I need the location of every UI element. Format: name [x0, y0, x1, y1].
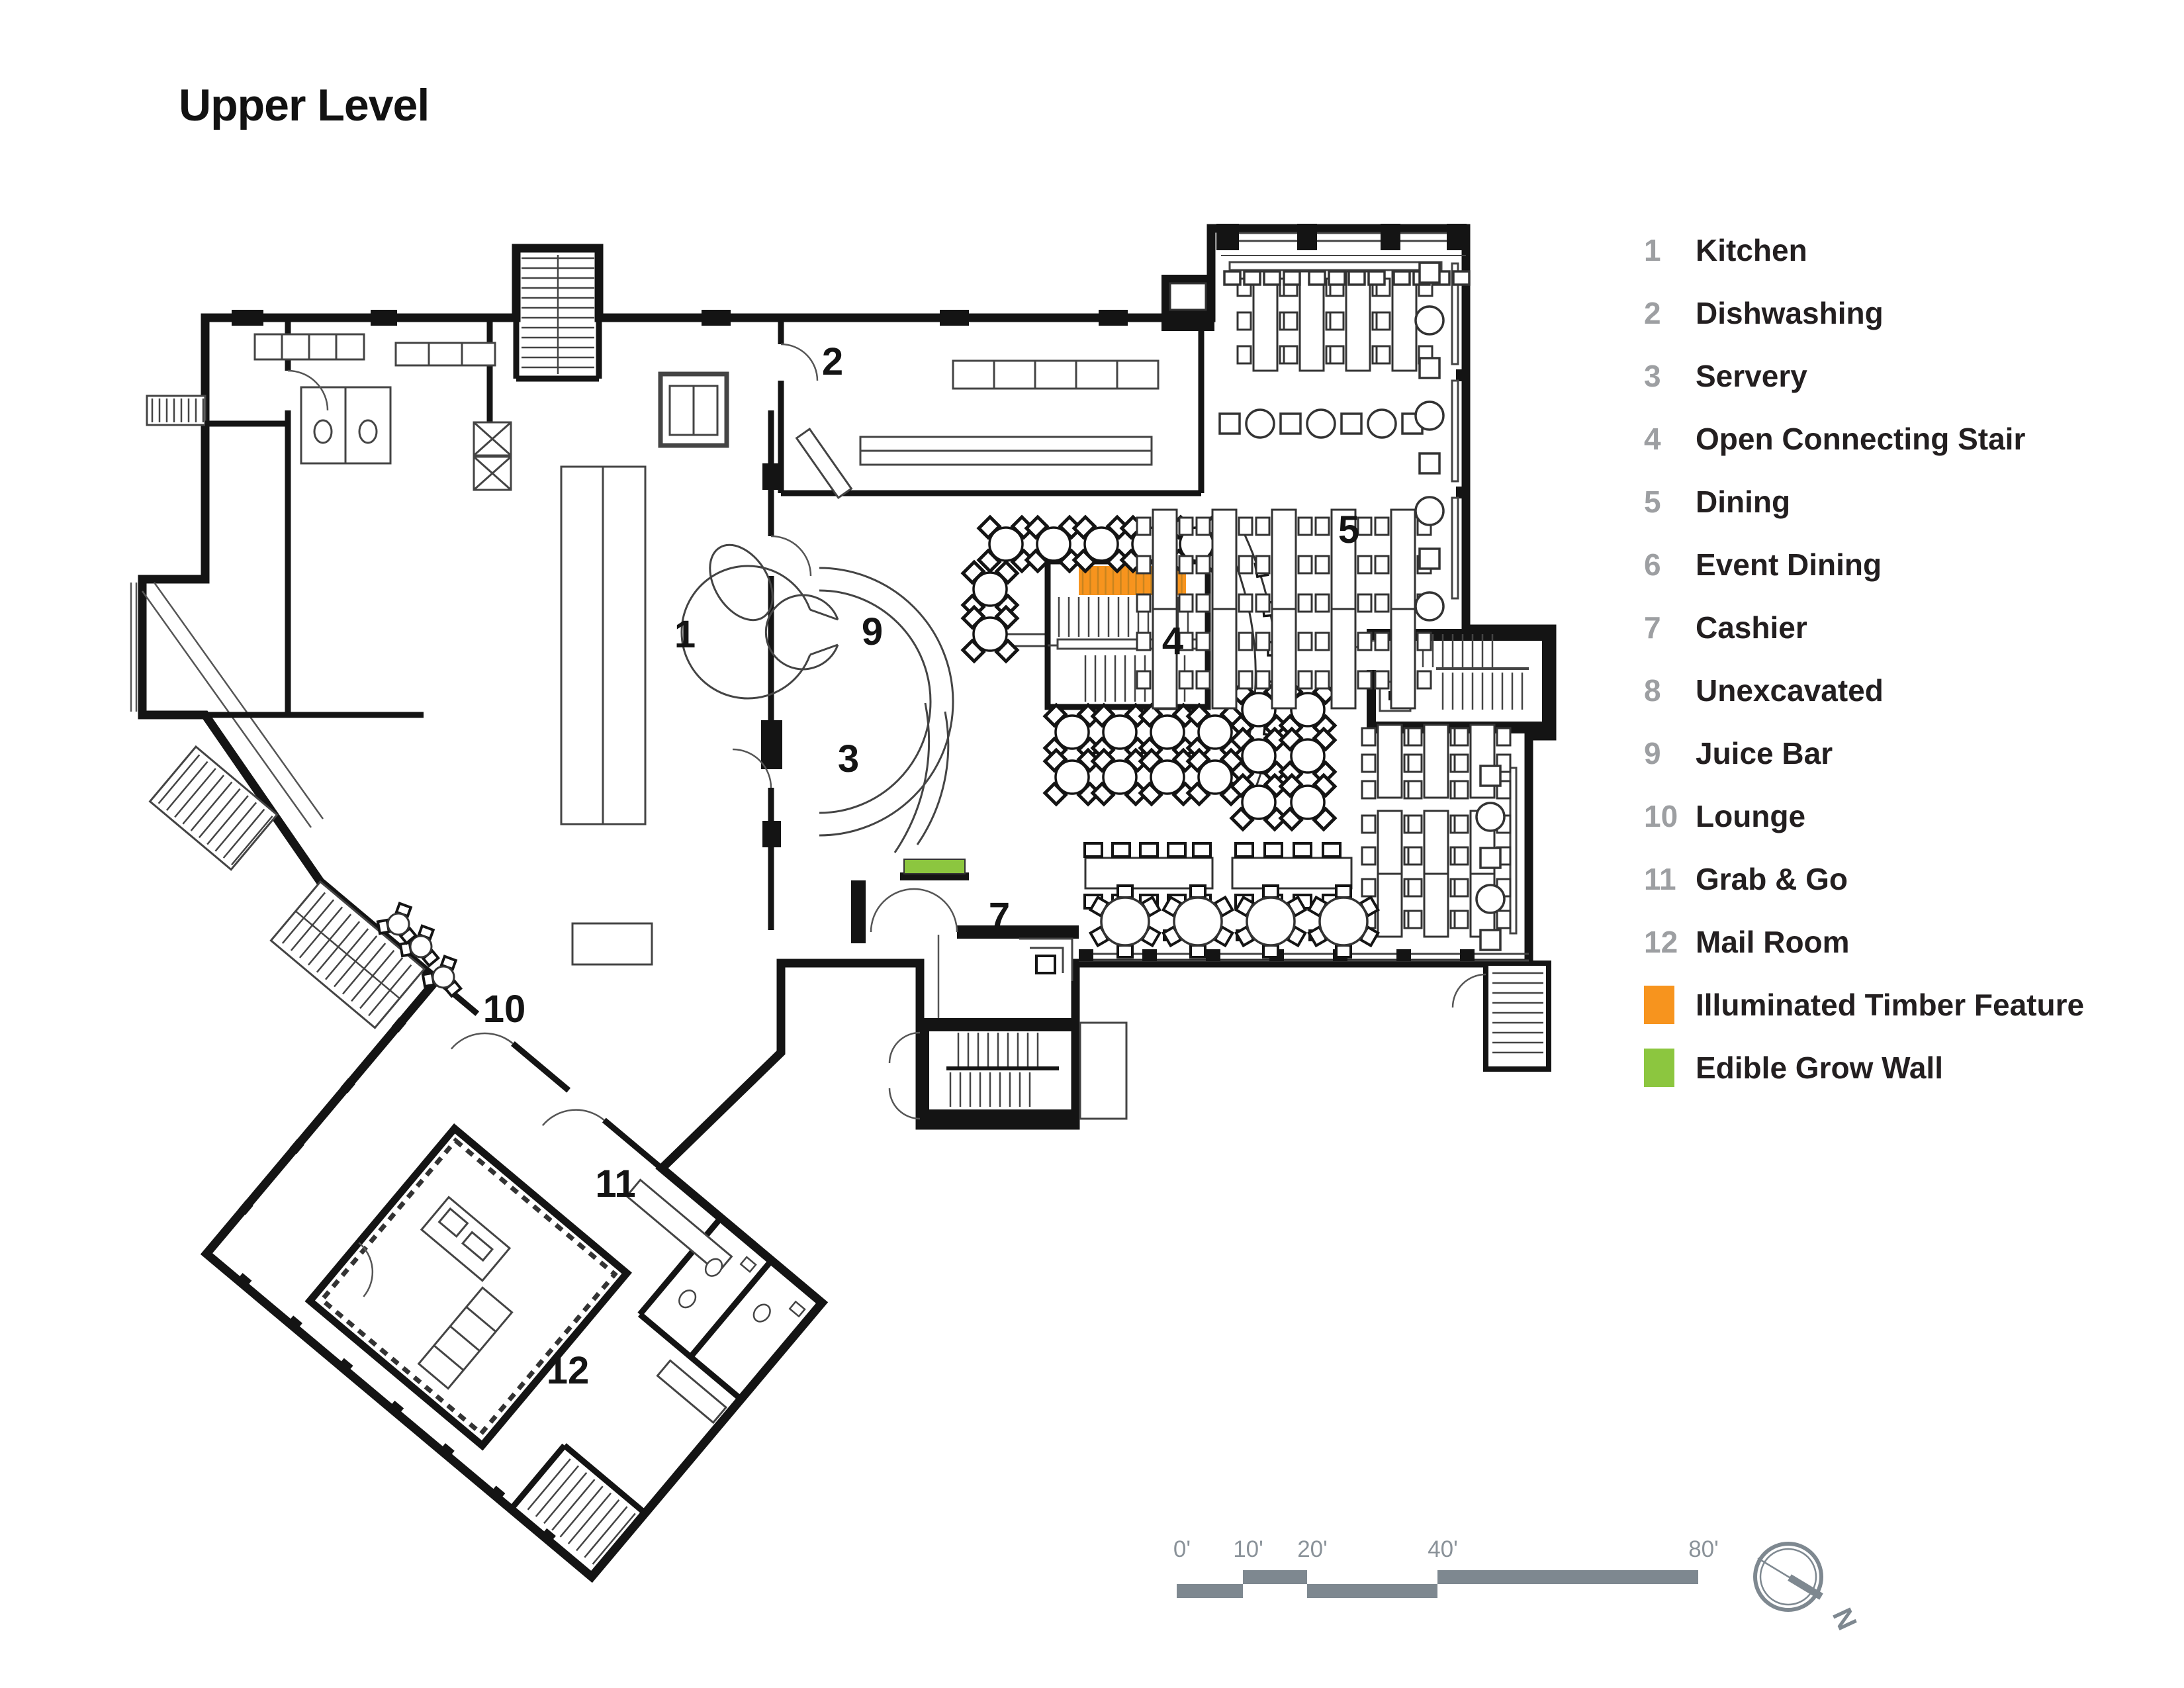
- legend-item-dining: 5Dining: [1644, 470, 2084, 533]
- edible-grow-wall: [904, 859, 965, 874]
- legend-number: 3: [1644, 358, 1696, 394]
- scale-tick-40: 40': [1428, 1536, 1458, 1562]
- scale-tick-80: 80': [1688, 1536, 1719, 1562]
- legend-number: 4: [1644, 421, 1696, 457]
- legend-feature-timber: Illuminated Timber Feature: [1644, 973, 2084, 1036]
- servery-pass: [1170, 283, 1206, 310]
- legend-item-open-connecting-stair: 4Open Connecting Stair: [1644, 407, 2084, 470]
- legend-label: Kitchen: [1696, 232, 1807, 268]
- north-arrow-icon: N: [1755, 1544, 1863, 1634]
- plan-room-label: 5: [1338, 508, 1359, 551]
- scale-tick-0: 0': [1173, 1536, 1191, 1562]
- legend-number: 8: [1644, 673, 1696, 708]
- legend-label: Cashier: [1696, 610, 1807, 645]
- legend-item-kitchen: 1Kitchen: [1644, 218, 2084, 281]
- legend-item-dishwashing: 2Dishwashing: [1644, 281, 2084, 344]
- legend-number: 11: [1644, 861, 1696, 897]
- legend-number: 12: [1644, 924, 1696, 960]
- legend-number: 1: [1644, 232, 1696, 268]
- legend-label: Unexcavated: [1696, 673, 1884, 708]
- legend-item-mail-room: 12Mail Room: [1644, 910, 2084, 973]
- legend: 1Kitchen 2Dishwashing 3Servery 4Open Con…: [1644, 218, 2084, 1099]
- legend-label: Juice Bar: [1696, 735, 1833, 771]
- legend-label: Dining: [1696, 484, 1790, 520]
- plan-room-label: 1: [674, 613, 696, 656]
- legend-item-grab-and-go: 11Grab & Go: [1644, 847, 2084, 910]
- legend-item-juice-bar: 9Juice Bar: [1644, 722, 2084, 784]
- legend-label: Illuminated Timber Feature: [1696, 987, 2084, 1023]
- plan-room-label: 12: [547, 1349, 590, 1392]
- legend-label: Grab & Go: [1696, 861, 1848, 897]
- timber-swatch-icon: [1644, 986, 1674, 1024]
- legend-label: Event Dining: [1696, 547, 1882, 583]
- legend-label: Edible Grow Wall: [1696, 1050, 1943, 1086]
- north-label: N: [1827, 1603, 1863, 1634]
- plan-room-label: 7: [989, 895, 1010, 938]
- scale-bar: 0' 10' 20' 40' 80': [1173, 1536, 1719, 1598]
- plan-room-label: 9: [862, 610, 883, 653]
- legend-feature-grow-wall: Edible Grow Wall: [1644, 1036, 2084, 1099]
- scale-tick-20: 20': [1297, 1536, 1328, 1562]
- legend-item-cashier: 7Cashier: [1644, 596, 2084, 659]
- legend-item-event-dining: 6Event Dining: [1644, 533, 2084, 596]
- legend-label: Dishwashing: [1696, 295, 1884, 331]
- legend-number: 10: [1644, 798, 1696, 834]
- se-stair: [1486, 963, 1549, 1069]
- legend-item-lounge: 10Lounge: [1644, 784, 2084, 847]
- legend-label: Mail Room: [1696, 924, 1850, 960]
- legend-label: Servery: [1696, 358, 1807, 394]
- legend-item-unexcavated: 8Unexcavated: [1644, 659, 2084, 722]
- exterior-stair-west: [147, 396, 205, 425]
- plan-room-label: 2: [822, 340, 843, 383]
- legend-label: Lounge: [1696, 798, 1805, 834]
- legend-number: 6: [1644, 547, 1696, 583]
- legend-number: 9: [1644, 735, 1696, 771]
- legend-item-servery: 3Servery: [1644, 344, 2084, 407]
- legend-label: Open Connecting Stair: [1696, 421, 2025, 457]
- legend-number: 5: [1644, 484, 1696, 520]
- legend-number: 7: [1644, 610, 1696, 645]
- plan-room-label: 3: [838, 737, 859, 780]
- grow-wall-swatch-icon: [1644, 1049, 1674, 1087]
- plan-room-label: 10: [483, 988, 526, 1031]
- scale-tick-10: 10': [1233, 1536, 1263, 1562]
- plan-room-label: 11: [595, 1162, 635, 1205]
- legend-number: 2: [1644, 295, 1696, 331]
- plan-room-label: 4: [1162, 620, 1183, 663]
